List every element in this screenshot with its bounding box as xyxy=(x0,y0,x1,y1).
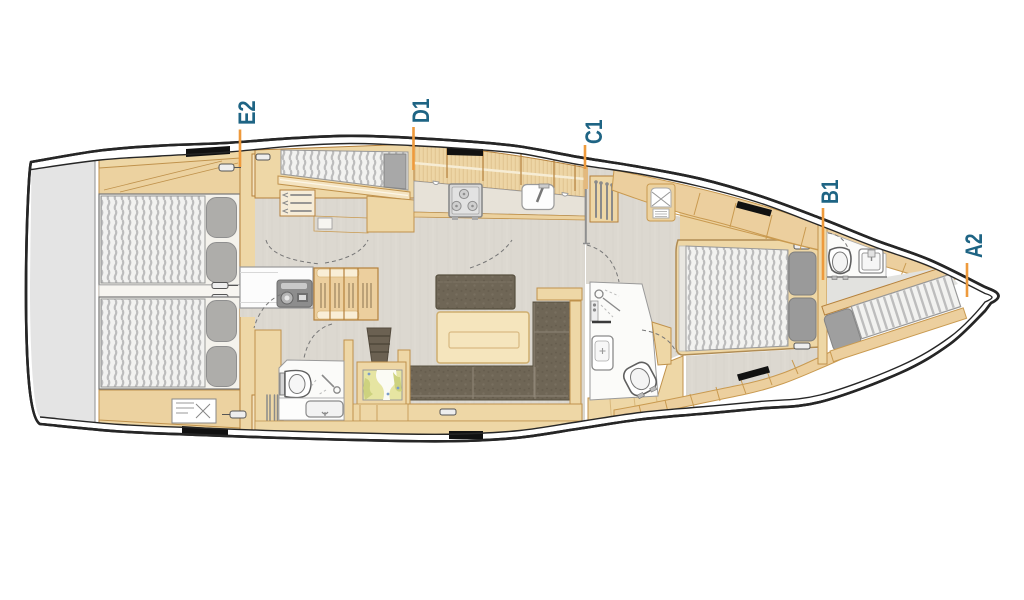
svg-text:A2: A2 xyxy=(961,234,988,259)
svg-text:D1: D1 xyxy=(408,99,435,124)
svg-text:E2: E2 xyxy=(234,101,261,126)
svg-text:B1: B1 xyxy=(817,180,844,205)
svg-text:C1: C1 xyxy=(581,120,608,145)
